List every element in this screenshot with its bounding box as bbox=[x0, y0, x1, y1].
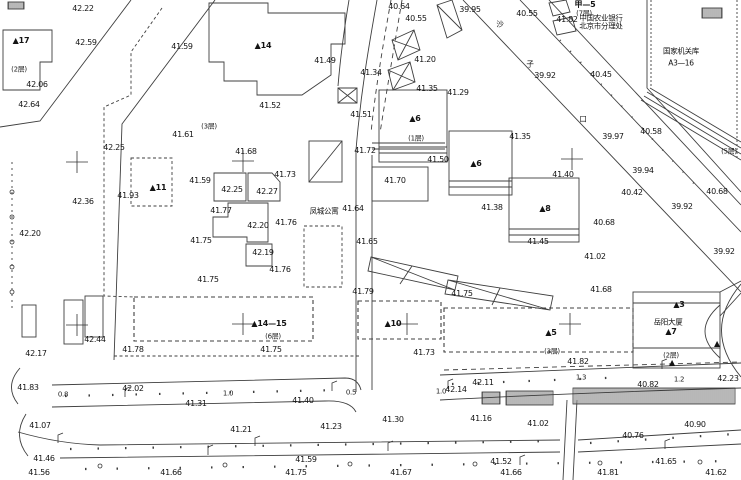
elevation-label: 41.75 bbox=[197, 276, 218, 284]
place-name-label: 国家机关库 bbox=[663, 47, 699, 55]
elevation-label: 41.59 bbox=[295, 456, 316, 464]
elevation-label: 42.02 bbox=[122, 385, 143, 393]
elevation-label: 41.34 bbox=[360, 69, 381, 77]
building-number-label: ▲5 bbox=[545, 329, 556, 337]
elevation-label: 40.82 bbox=[637, 381, 658, 389]
elevation-label: 41.79 bbox=[352, 288, 373, 296]
building-number-label: ▲11 bbox=[150, 184, 167, 192]
elevation-label: 41.35 bbox=[416, 85, 437, 93]
elevation-label: 41.81 bbox=[597, 469, 618, 477]
elevation-label: 41.61 bbox=[172, 131, 193, 139]
elevation-label: 42.59 bbox=[75, 39, 96, 47]
building-number-label: ▲6 bbox=[409, 115, 420, 123]
elevation-label: 40.45 bbox=[590, 71, 611, 79]
elevation-label: 41.68 bbox=[235, 148, 256, 156]
road-width-label: 1.0 bbox=[436, 389, 446, 396]
elevation-label: 42.22 bbox=[72, 5, 93, 13]
elevation-label: 41.72 bbox=[354, 147, 375, 155]
building-number-label: ▲6 bbox=[470, 160, 481, 168]
elevation-label: 41.40 bbox=[552, 171, 573, 179]
elevation-label: 39.95 bbox=[459, 6, 480, 14]
elevation-label: 41.49 bbox=[314, 57, 335, 65]
building-number-label: ▲17 bbox=[13, 37, 30, 45]
elevation-label: 40.64 bbox=[388, 3, 409, 11]
elevation-label: 41.64 bbox=[342, 205, 363, 213]
elevation-label: 41.73 bbox=[413, 349, 434, 357]
road-width-label: 0.5 bbox=[346, 390, 356, 397]
elevation-label: 41.50 bbox=[427, 156, 448, 164]
elevation-label: 40.55 bbox=[516, 10, 537, 18]
building-number-label: ▲3 bbox=[673, 301, 684, 309]
elevation-label: 42.11 bbox=[472, 379, 493, 387]
elevation-label: 41.20 bbox=[414, 56, 435, 64]
building-number-label: 甲—5 bbox=[575, 1, 596, 9]
elevation-label: 41.68 bbox=[590, 286, 611, 294]
elevation-label: 41.82 bbox=[567, 358, 588, 366]
building-number-label: ▲14 bbox=[255, 42, 272, 50]
elevation-label: 41.66 bbox=[500, 469, 521, 477]
place-name-label: 凤城公寓 bbox=[310, 207, 339, 215]
floor-count-label: (2层) bbox=[663, 353, 679, 360]
elevation-label: 42.23 bbox=[717, 375, 738, 383]
place-name-label: 岳阳大厦 bbox=[654, 318, 683, 326]
floor-count-label: (2层) bbox=[11, 67, 27, 74]
elevation-label: 41.45 bbox=[527, 238, 548, 246]
elevation-label: 41.38 bbox=[481, 204, 502, 212]
elevation-label: 41.21 bbox=[230, 426, 251, 434]
elevation-label: 40.68 bbox=[706, 188, 727, 196]
elevation-label: 41.29 bbox=[447, 89, 468, 97]
elevation-label: 42.20 bbox=[247, 222, 268, 230]
elevation-label: 41.70 bbox=[384, 177, 405, 185]
building-number-label: ▲ bbox=[669, 359, 675, 367]
elevation-label: 41.02 bbox=[584, 253, 605, 261]
elevation-label: 41.78 bbox=[122, 346, 143, 354]
elevation-label: 41.51 bbox=[350, 111, 371, 119]
elevation-label: 39.94 bbox=[632, 167, 653, 175]
elevation-label: 42.17 bbox=[25, 350, 46, 358]
floor-count-label: (1层) bbox=[408, 136, 424, 143]
elevation-label: 40.90 bbox=[684, 421, 705, 429]
elevation-label: 42.25 bbox=[221, 186, 242, 194]
elevation-label: 41.62 bbox=[705, 469, 726, 477]
elevation-label: 41.52 bbox=[490, 458, 511, 466]
building-number-label: ▲ bbox=[714, 340, 720, 348]
elevation-label: 41.83 bbox=[17, 384, 38, 392]
label-layer: 42.2242.5941.5942.0642.6441.6142.2540.64… bbox=[0, 0, 741, 480]
building-number-label: ▲8 bbox=[539, 205, 550, 213]
elevation-label: 41.31 bbox=[185, 400, 206, 408]
elevation-label: 41.66 bbox=[160, 469, 181, 477]
elevation-label: 41.76 bbox=[269, 266, 290, 274]
elevation-label: 42.64 bbox=[18, 101, 39, 109]
road-width-label: 1.2 bbox=[674, 377, 684, 384]
road-width-label: 1.0 bbox=[223, 391, 233, 398]
building-number-label: ▲14—15 bbox=[251, 320, 286, 328]
elevation-label: 42.06 bbox=[26, 81, 47, 89]
elevation-label: 41.82 bbox=[556, 16, 577, 24]
elevation-label: 42.36 bbox=[72, 198, 93, 206]
elevation-label: 41.65 bbox=[356, 238, 377, 246]
elevation-label: 41.46 bbox=[33, 455, 54, 463]
road-width-label: 1.3 bbox=[576, 375, 586, 382]
road-width-label: 0.8 bbox=[58, 392, 68, 399]
place-name-label: 北京市分理处 bbox=[579, 22, 622, 30]
elevation-label: 41.76 bbox=[275, 219, 296, 227]
elevation-label: 41.56 bbox=[28, 469, 49, 477]
elevation-label: 42.14 bbox=[445, 386, 466, 394]
elevation-label: 42.27 bbox=[256, 188, 277, 196]
elevation-label: 40.55 bbox=[405, 15, 426, 23]
floor-count-label: (3层) bbox=[544, 349, 560, 356]
elevation-label: 41.77 bbox=[210, 207, 231, 215]
elevation-label: 40.58 bbox=[640, 128, 661, 136]
topographic-site-plan: 42.2242.5941.5942.0642.6441.6142.2540.64… bbox=[0, 0, 741, 480]
elevation-label: 41.65 bbox=[655, 458, 676, 466]
elevation-label: 41.07 bbox=[29, 422, 50, 430]
elevation-label: 41.35 bbox=[509, 133, 530, 141]
elevation-label: 41.75 bbox=[285, 469, 306, 477]
elevation-label: 42.19 bbox=[252, 249, 273, 257]
elevation-label: 41.75 bbox=[260, 346, 281, 354]
elevation-label: 39.92 bbox=[671, 203, 692, 211]
elevation-label: 41.02 bbox=[527, 420, 548, 428]
elevation-label: 41.59 bbox=[189, 177, 210, 185]
elevation-label: 41.30 bbox=[382, 416, 403, 424]
elevation-label: 40.68 bbox=[593, 219, 614, 227]
elevation-label: 41.93 bbox=[117, 192, 138, 200]
elevation-label: 41.67 bbox=[390, 469, 411, 477]
building-number-label: ▲7 bbox=[665, 328, 676, 336]
floor-count-label: (6层) bbox=[265, 334, 281, 341]
elevation-label: 41.52 bbox=[259, 102, 280, 110]
elevation-label: 41.40 bbox=[292, 397, 313, 405]
elevation-label: 39.92 bbox=[713, 248, 734, 256]
place-name-label: A3—16 bbox=[668, 59, 693, 67]
elevation-label: 39.97 bbox=[602, 133, 623, 141]
elevation-label: 39.92 bbox=[534, 72, 555, 80]
elevation-label: 40.76 bbox=[622, 432, 643, 440]
elevation-label: 41.23 bbox=[320, 423, 341, 431]
elevation-label: 41.75 bbox=[190, 237, 211, 245]
place-name-label: 子 bbox=[526, 60, 533, 68]
place-name-label: 沙 bbox=[496, 20, 503, 28]
elevation-label: 41.75 bbox=[451, 290, 472, 298]
elevation-label: 42.25 bbox=[103, 144, 124, 152]
floor-count-label: (5层) bbox=[721, 149, 737, 156]
elevation-label: 41.73 bbox=[274, 171, 295, 179]
elevation-label: 42.44 bbox=[84, 336, 105, 344]
elevation-label: 41.16 bbox=[470, 415, 491, 423]
place-name-label: 口 bbox=[579, 115, 586, 123]
floor-count-label: (3层) bbox=[201, 124, 217, 131]
elevation-label: 41.59 bbox=[171, 43, 192, 51]
elevation-label: 42.20 bbox=[19, 230, 40, 238]
building-number-label: ▲10 bbox=[385, 320, 402, 328]
elevation-label: 40.42 bbox=[621, 189, 642, 197]
